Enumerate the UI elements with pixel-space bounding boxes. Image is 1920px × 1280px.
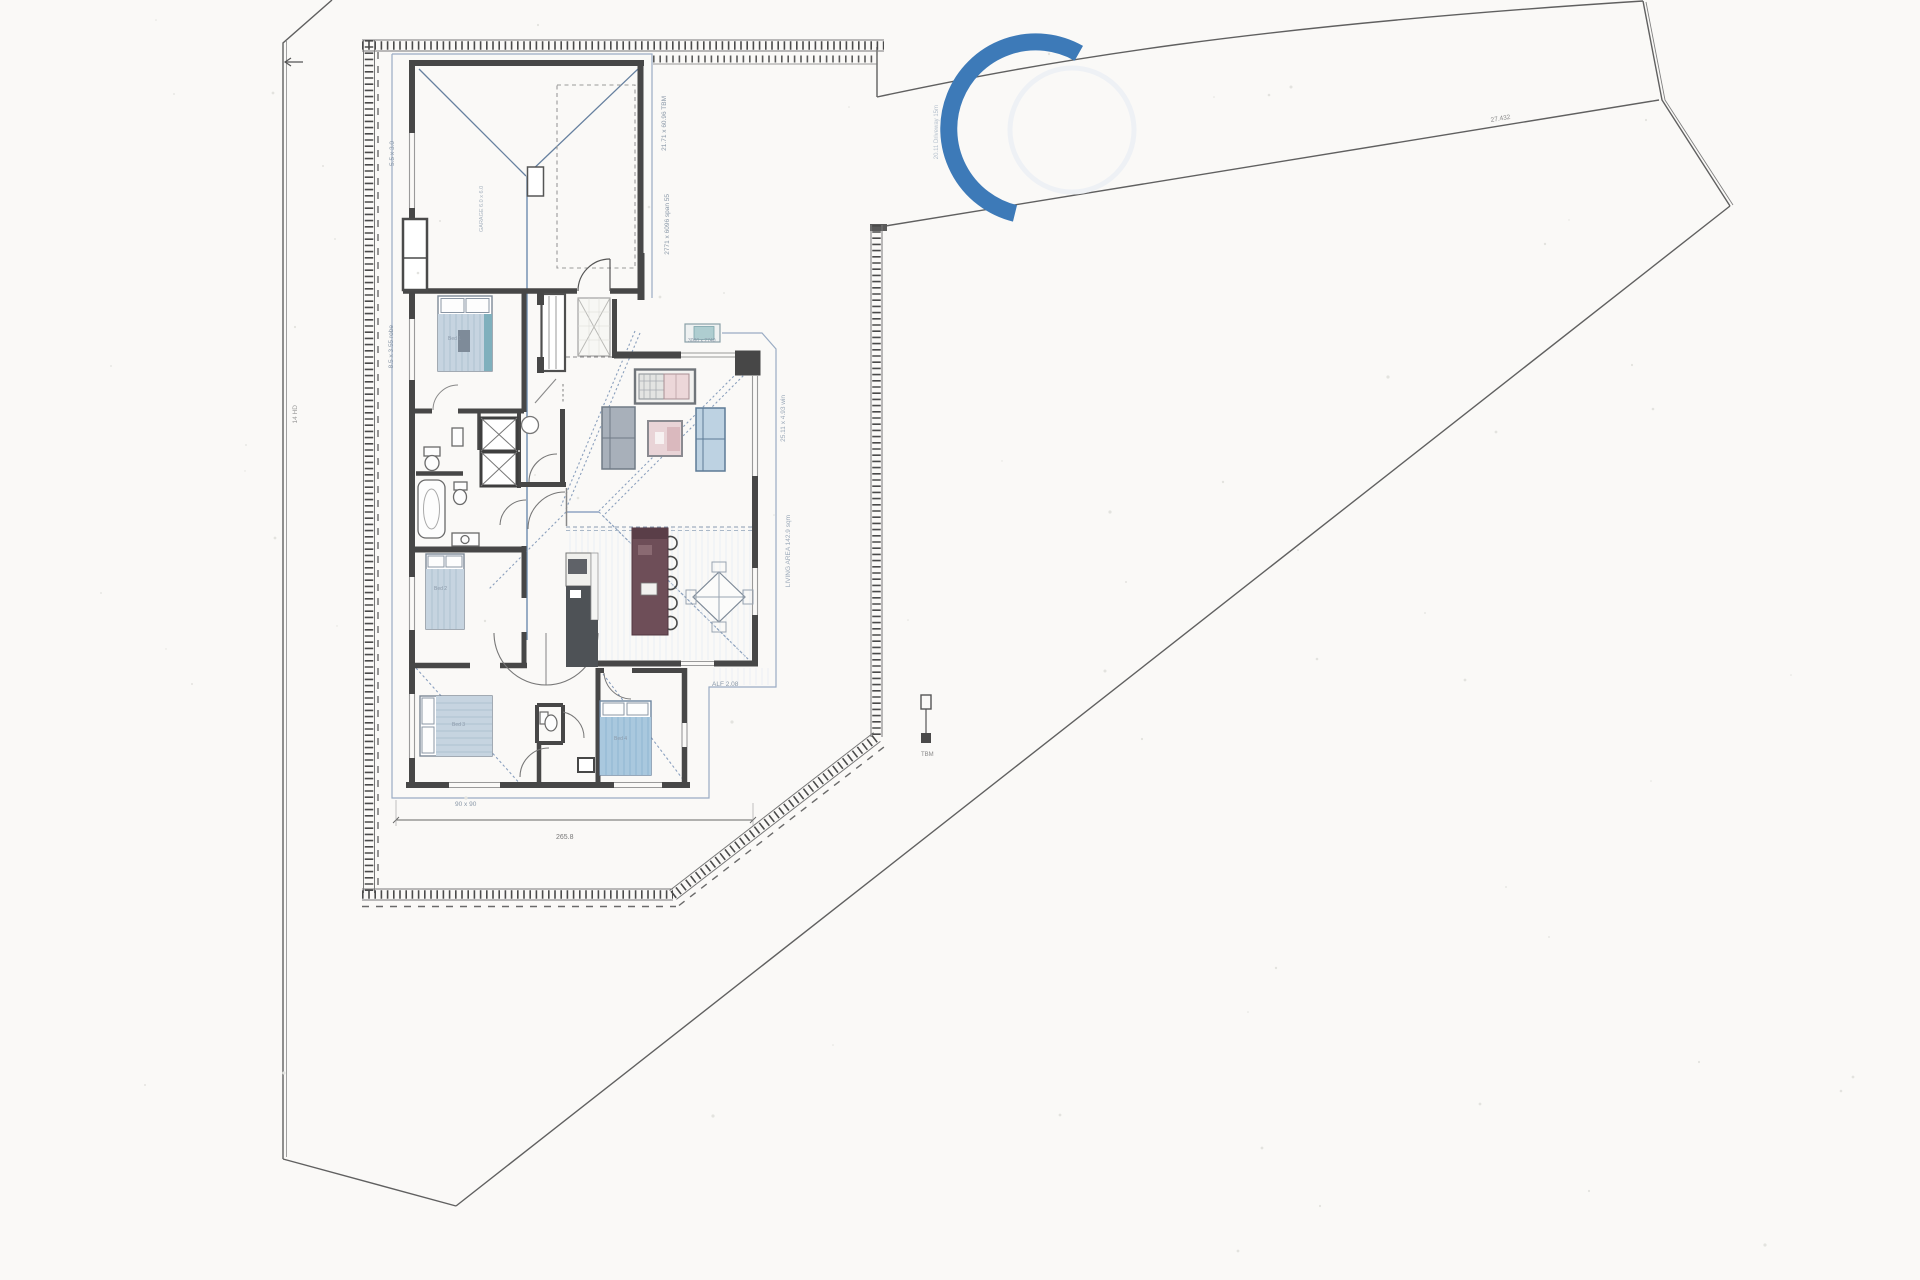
svg-text:90 x 90: 90 x 90 bbox=[455, 801, 477, 808]
svg-text:265.8: 265.8 bbox=[556, 834, 574, 841]
svg-text:Bed 1: Bed 1 bbox=[448, 336, 461, 342]
svg-text:8.5 x 3.55 robe: 8.5 x 3.55 robe bbox=[388, 325, 395, 369]
svg-text:Bed 4: Bed 4 bbox=[614, 736, 627, 742]
svg-text:TBM: TBM bbox=[921, 752, 934, 758]
svg-text:ALF 2.08: ALF 2.08 bbox=[712, 681, 739, 688]
svg-text:20.11 Driveway 15m: 20.11 Driveway 15m bbox=[934, 105, 940, 159]
svg-text:LIVING AREA 142.9 sqm: LIVING AREA 142.9 sqm bbox=[785, 515, 792, 587]
svg-text:14 HD: 14 HD bbox=[292, 405, 299, 424]
svg-text:Bed 3: Bed 3 bbox=[452, 722, 465, 728]
svg-text:2771 x 6096 span 55: 2771 x 6096 span 55 bbox=[664, 194, 671, 255]
svg-text:25.11 x 4.93 win: 25.11 x 4.93 win bbox=[780, 395, 787, 442]
svg-text:21.71 x 60.96 TBM: 21.71 x 60.96 TBM bbox=[661, 96, 668, 151]
svg-text:5.5 x 3.0: 5.5 x 3.0 bbox=[389, 141, 396, 166]
svg-text:Bed 2: Bed 2 bbox=[434, 586, 447, 592]
svg-text:3080 x 2740: 3080 x 2740 bbox=[688, 338, 716, 344]
svg-text:GARAGE 6.0 x 6.0: GARAGE 6.0 x 6.0 bbox=[479, 186, 485, 232]
